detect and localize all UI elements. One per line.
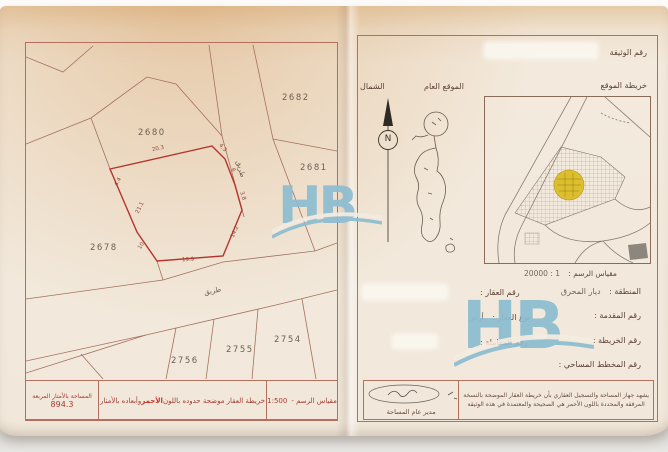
map-number-label: رقم الخريطة : [593,336,641,345]
redacted-document-number [486,44,596,57]
plot-number-2678: 2678 [90,243,118,253]
document-photo: 2682 2681 2680 2678 2754 2755 2756 طريق … [0,0,668,452]
redacted-transaction-number [394,336,436,347]
map-note-text-end: وأبعاده بالأمتار [100,397,141,405]
plot-number-2756: 2756 [171,356,199,366]
plot-number-2681: 2681 [300,163,328,173]
area-label: المساحة بالأمتار المربعة [32,393,92,400]
map-note-red-word: الأحمر [141,397,163,405]
signature-scribble [366,383,462,407]
dim-label-bottom: 19.9 [182,257,195,264]
location-map [484,96,651,264]
map-note-text: خريطة العقار موضحة حدوده باللون [163,397,265,405]
plot-number-2754: 2754 [274,335,302,345]
hb-logo-swoosh-large [454,293,594,387]
map-scale-line: مقياس الرسم : 1 : 20000 [484,269,651,278]
north-label: الشمال [360,82,385,91]
field-map-number: رقم الخريطة : [593,336,641,345]
plot-number-2755: 2755 [226,345,254,355]
hb-watermark-right: HB [462,293,584,387]
certification-line2: المرفقة والمحددة باللون الأحمر هي الصحيح… [468,400,645,409]
map-scale-label: مقياس الرسم : [568,269,617,278]
footer-note-cell: خريطة العقار موضحة حدوده باللون الأحمر و… [98,380,267,421]
subject-plot-boundary [110,146,242,261]
map-scale-value: 1 : 20000 [524,269,560,278]
signature-title: مدير عام المساحة [364,408,458,416]
bahrain-outline-sketch [388,98,472,268]
signature-cell: مدير عام المساحة [364,381,458,419]
footer-area-cell: المساحة بالأمتار المربعة 894.3 [25,380,99,421]
region-label: المنطقة : [609,287,641,296]
area-value: 894.3 [51,400,74,409]
plot-number-2680: 2680 [138,128,166,138]
redacted-parcel-number [364,286,446,298]
plot-number-2682: 2682 [282,93,310,103]
general-location-label: الموقع العام [424,82,464,91]
hb-watermark-left: HB [278,180,374,256]
footer-scale-cell: مقياس الرسم - 1:500 [266,380,338,421]
certification-line1: يشهد جهاز المساحة والتسجيل العقاري بأن خ… [463,391,649,400]
location-map-label: خريطة الموقع [601,81,647,90]
scale-label: مقياس الرسم - [291,397,337,405]
location-map-drawing [485,97,650,263]
application-number-label: رقم المقدمة : [594,311,641,320]
document-number-label: رقم الوثيقة [610,48,647,57]
scale-value: 1:500 [267,397,287,405]
hb-logo-swoosh [272,180,382,256]
field-application-number: رقم المقدمة : [594,311,641,320]
